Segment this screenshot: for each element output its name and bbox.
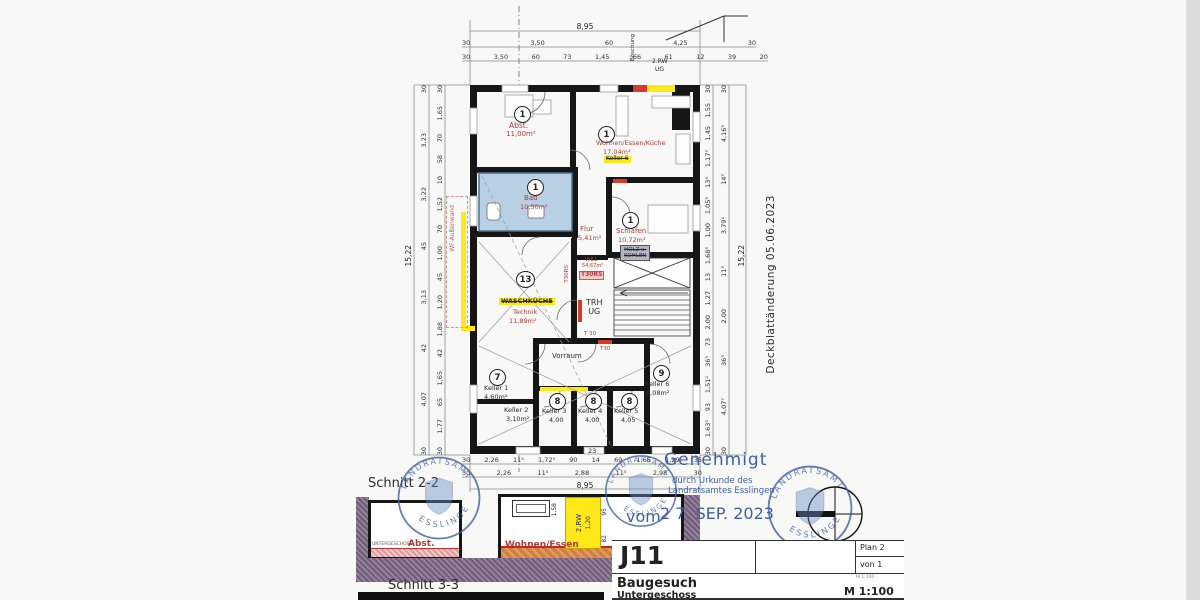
dim-value: 4,07⁷ [720,398,728,415]
dim-value: 73 [704,338,712,346]
dim-value: 42 [420,344,428,352]
label-wf-aussenwand: WF-Außenwand [450,205,457,252]
dim-left-a: 301,657058101,52701,00451,201,88421,6565… [435,85,445,455]
dim-value: 42 [436,349,444,357]
dim-top-total: 8,95 [470,22,700,31]
approval-line2: durch Urkunde des [672,476,775,486]
label-t30-trh: T 30 [584,331,596,337]
tb-plan-number: Plan 2 [860,543,885,552]
label-t30rs-vertical: T30RS [564,265,570,283]
dim-value: 3,13 [420,290,428,304]
dim-bottom-small: 23 [588,448,596,455]
room-area-keller1: 4,60m² [484,394,507,401]
dim-value: 65 [436,398,444,406]
dim-value: 13⁵ [704,177,712,188]
dim-right-b: 304,16⁵14⁵3,79⁵11⁵2,0036⁵4,07⁷30 [719,85,729,455]
label-t30-vorraum: T30 [600,346,610,352]
dim-value: 30 [748,39,756,47]
room-area-schlafen: 10,72m² [618,237,646,244]
tb-divider-v1 [755,540,756,573]
dim-value: 36⁵ [720,355,728,366]
dim-value: 45 [436,273,444,281]
room-area-abst: 11,00m² [506,131,536,139]
dim-value: 70 [436,134,444,142]
room-name-wasch-old: WASCHKÜCHE [499,298,555,305]
dim-left-b: 303,233,22453,13424,0730 [419,85,429,455]
dim-value: 3,22 [420,187,428,201]
dim-top-b: 303,5060731,456661123920 [462,53,768,61]
dim-value: 10 [436,176,444,184]
dim-value: 11⁵ [513,456,524,464]
room-name-vorraum: Vorraum [552,353,582,361]
dim-value: 1,20 [436,295,444,309]
dim-value: 1,00 [436,246,444,260]
room-area-keller5: 4,05 [621,417,635,424]
section-3-3-cut-bar [358,592,604,600]
room-name-keller6: Keller 6 [645,381,669,388]
dim-value: 30 [704,85,712,93]
dim-value: 58 [436,155,444,163]
dim-value: 30 [720,85,728,93]
room-area-flur: 5,41m² [578,235,601,242]
dim-value: 14⁵ [720,174,728,185]
dim-value: 3,23 [420,133,428,147]
section-dim-1: 1,58 [552,503,559,516]
tb-plan-code: J11 [620,541,664,570]
note-holz-kohlen: HOLZ u. KOHLEN [620,245,650,261]
approval-text: Genehmigt durch Urkunde des Landratsamte… [664,450,775,496]
dim-value: 3,50 [494,53,508,61]
room-name-flur: Flur [580,226,593,234]
room-name-technik: Technik [513,309,537,316]
room-name-keller5: Keller 5 [614,408,638,415]
dim-value: 70 [436,225,444,233]
tb-divider-mid [612,573,904,574]
dim-value: 30 [436,85,444,93]
dim-value: 1,68⁵ [704,247,712,264]
room-area-keller6: 6,08m² [646,390,669,397]
dim-value: 4,16⁵ [720,125,728,142]
room-name-wohnen: Wohnen/Essen/Küche [596,140,666,147]
label-deckblattaenderung: Deckblattänderung 05.06.2023 [766,195,778,374]
approval-genehmigt: Genehmigt [664,450,775,470]
dim-right-total: 15,22 [738,245,746,266]
dim-value: 93 [704,403,712,411]
room-name-keller1: Keller 1 [484,385,508,392]
label-we1-area: 54,67m² [582,264,603,270]
tb-doc-type: Baugesuch [617,576,697,591]
dim-value: 1,51² [704,376,712,393]
dim-value: 20 [760,53,768,61]
label-rw: 2.RW [652,59,668,66]
dim-value: 1,17⁵ [704,150,712,167]
dim-top-a: 303,50604,2530 [462,39,756,47]
room-note-keller6-old: Keller 6 [604,156,631,163]
dim-value: 36⁵ [704,356,712,367]
title-block: J11 Plan 2 von 1 M 1:100 · Baugesuch Unt… [612,540,904,600]
dim-left-total: 15,22 [405,245,413,266]
section-label-wohnen: Wohnen/Essen [505,541,579,551]
dim-value: 2,00 [720,309,728,323]
section-window [512,500,550,517]
crossed-box [614,258,690,288]
room-name-keller2: Keller 2 [504,407,528,414]
dim-value: 11⁵ [537,469,548,477]
room-name-bad: Bad [524,195,538,203]
round-stamp-1: LANDRATSAMT ESSLINGEN [394,453,484,547]
dim-value: 1,00 [704,223,712,237]
dim-value: 1,88 [436,322,444,336]
room-area-bad: 10,50m² [520,204,548,211]
section-rw-dim: 1,20 [585,516,592,529]
room-area-keller4: 4,00 [585,417,599,424]
dim-value: 30 [420,85,428,93]
dim-value: 1,72⁵ [538,456,555,464]
dim-value: 1,55 [704,103,712,117]
tb-divider-cell [855,556,904,557]
dim-right-a: 301,551,451,17⁵13⁵1,05⁵1,001,68⁵131,272,… [703,85,713,455]
dim-value: 4,07 [420,392,428,406]
tb-floor-name: Untergeschoss [617,590,696,600]
dim-value: 2,00 [704,315,712,329]
dim-value: 1,52 [436,197,444,211]
dim-value: 1,77 [436,419,444,433]
label-trh-ug: UG [588,307,600,316]
section-dim-3: 82 [602,535,609,543]
dim-value: 2,26 [484,456,498,464]
dim-value: 1,63⁵ [704,420,712,437]
dim-value: 11⁵ [720,266,728,277]
dim-value: 12 [696,53,704,61]
dim-value: 4,25 [673,39,687,47]
room-number-wasch: 13 [516,271,535,288]
stairs [614,290,690,336]
dim-value: 39 [728,53,736,61]
round-stamp-2: LANDRATSAMT ESSLINGEN [602,452,680,534]
label-rw-ug: UG [655,67,664,74]
dim-value: 1,65 [436,106,444,120]
dim-value: 13 [704,273,712,281]
room-area-technik: 11,89m² [509,318,537,325]
dim-value: 1,45 [704,126,712,140]
dim-value: 1,65 [436,371,444,385]
dim-value: 1,05⁵ [704,197,712,214]
dim-value: 30 [462,53,470,61]
dim-value: 1,45 [595,53,609,61]
label-t30rs: T30RS [579,271,604,280]
tb-scale-small: M 1:100 · [856,575,877,580]
dim-value: 30 [462,39,470,47]
room-name-abst: Abst. [509,122,528,130]
dim-value: 60 [605,39,613,47]
tb-sheet-number: von 1 [860,560,882,569]
room-area-keller3: 4,00 [549,417,563,424]
label-boeschung: Böschung [630,34,636,61]
section-rw-label: 2.RW [575,514,583,532]
note-holz-line2: KOHLEN [624,253,646,259]
room-name-keller3: Keller 3 [542,408,566,415]
room-name-keller4: Keller 4 [578,408,602,415]
dim-value: 2,88 [575,469,589,477]
label-trh: TRH [586,298,602,307]
room-area-keller2: 3,10m² [506,416,529,423]
dim-value: 3,79⁵ [720,217,728,234]
tb-scale: M 1:100 [844,585,894,598]
dim-value: 3,50 [530,39,544,47]
dim-value: 73 [563,53,571,61]
scanned-floor-plan-page: 8,95 303,50604,2530 303,5060731,45666112… [0,0,1200,600]
dim-value: 45 [420,242,428,250]
dim-value: 2,26 [497,469,511,477]
dim-value: 90 [569,456,577,464]
approval-line3: Landratsamtes Esslingen [668,486,775,496]
dim-value: 1,27 [704,291,712,305]
dim-value: 14 [592,456,600,464]
dim-value: 60 [532,53,540,61]
room-name-schlafen: Schlafen [616,228,646,236]
